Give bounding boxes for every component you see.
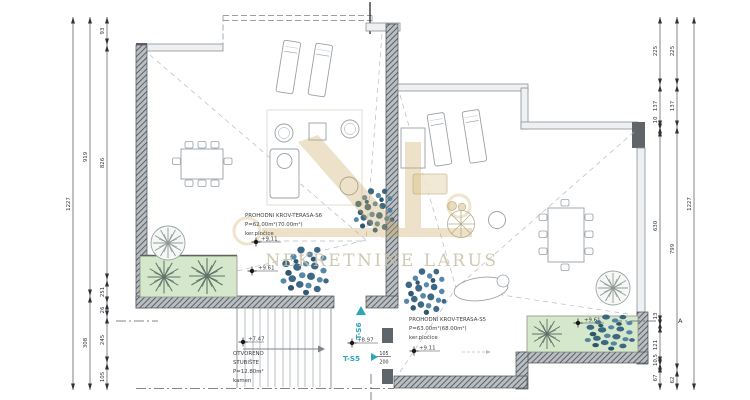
terrace-s6-name: PROHODNI KROV-TERASA-S6	[245, 213, 323, 219]
planter-left-elevation: +9.61	[258, 266, 275, 272]
door-swing-arrow	[462, 350, 491, 354]
dim-right-mid-1: 225	[670, 46, 676, 56]
roof-overhang-outline	[223, 16, 372, 45]
sun-lounger	[427, 112, 452, 166]
planter-left	[140, 256, 237, 298]
dim-right-in-3: 10	[653, 116, 659, 123]
stairs-finish: kamen	[233, 378, 251, 384]
dim-left-in-2: 826	[100, 157, 106, 168]
terrace-s5-finish: ker.pločice	[409, 334, 438, 341]
sun-lounger	[308, 43, 333, 97]
planter-pot	[458, 203, 466, 211]
dim-right-in-6: 121	[653, 340, 659, 350]
sun-lounger	[462, 109, 487, 163]
dim-right-in-8: 67	[653, 375, 659, 382]
dining-set-left	[173, 142, 233, 187]
terrace-s5-elevation: +9.11	[419, 346, 436, 352]
staircase	[237, 308, 331, 388]
dim-right-mid-4: 62	[670, 377, 676, 384]
terrace-s5-name: PROHODNI KROV-TERASA-S5	[409, 317, 486, 323]
stairs-label-2: STUBIŠTE	[233, 359, 260, 366]
dim-left-in-3: 251	[100, 287, 106, 297]
t-s6-label: T-S6	[354, 322, 363, 339]
dim-left-in-1: 93	[100, 28, 106, 35]
stairs-label-1: OTVORENO	[233, 351, 264, 357]
dim-right-in-7: 10,5	[653, 354, 659, 366]
dim-right-in-5: 13	[653, 313, 659, 320]
terrace-s6-elevation: +9.11	[261, 237, 278, 243]
stairs-elevation: +7.47	[248, 337, 265, 343]
dim-right-outer: 1227	[687, 197, 693, 211]
round-chair	[489, 212, 506, 229]
t-s5-entry-arrow	[371, 353, 378, 361]
terrace-s6-area: P=62.00m²(70.00m²)	[245, 221, 303, 228]
watermark-logo-base	[262, 228, 472, 237]
floor-plan-image: NEKRETNINE LARUS 1227	[0, 0, 750, 400]
round-planter	[596, 271, 630, 305]
dim-right-mid-2: 137	[670, 101, 676, 111]
section-a-label: A	[678, 317, 683, 325]
floor-plan-svg: NEKRETNINE LARUS 1227	[0, 0, 750, 400]
dining-set-right	[539, 200, 593, 271]
stair-direction-arrow	[318, 346, 325, 353]
step-run: 200	[379, 360, 388, 366]
dim-left-mid-1: 919	[83, 151, 89, 162]
side-table	[497, 275, 509, 287]
dim-left-in-6: 105	[100, 372, 106, 382]
watermark-text: NEKRETNINE LARUS	[265, 251, 498, 271]
dim-left-mid-2: 308	[83, 337, 89, 348]
step-rise: 105	[379, 351, 388, 357]
t-s6-entry-arrow	[356, 306, 366, 315]
terrace-s5-area: P=63.00m²(68.00m²)	[409, 325, 467, 332]
dim-right-mid-3: 799	[670, 243, 676, 254]
dim-right-in-1: 225	[653, 46, 659, 56]
round-planter	[151, 226, 185, 260]
t-s5-label: T-S5	[343, 354, 360, 363]
dim-left-in-5: 245	[100, 335, 106, 345]
dim-left-outer: 1227	[66, 197, 72, 211]
dim-right-in-4: 630	[653, 220, 659, 231]
planter-right-elevation: +9.61	[584, 318, 601, 324]
dim-left-in-4: 26	[100, 306, 106, 313]
watermark-logo-stroke	[405, 142, 421, 234]
dim-right-in-2: 137	[653, 101, 659, 111]
sun-lounger	[276, 40, 301, 94]
stairs-area: P=12.80m²	[233, 368, 264, 375]
